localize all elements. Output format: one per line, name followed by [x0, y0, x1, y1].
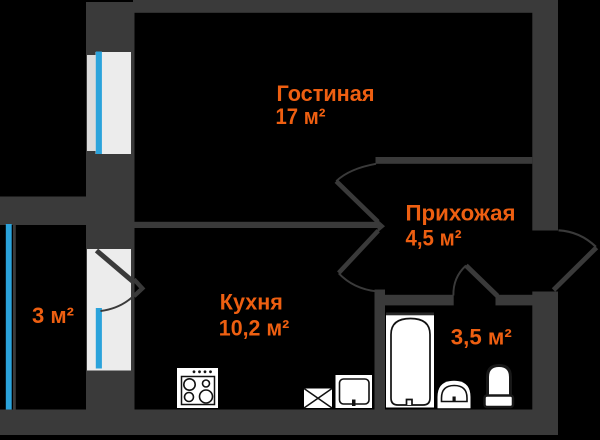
svg-text:3 м²: 3 м²	[32, 303, 74, 328]
svg-text:Гостиная: Гостиная	[277, 81, 375, 106]
svg-text:Кухня: Кухня	[220, 289, 283, 314]
svg-text:3,5 м²: 3,5 м²	[451, 324, 512, 349]
svg-text:10,2 м²: 10,2 м²	[219, 316, 289, 341]
svg-text:Прихожая: Прихожая	[406, 201, 516, 226]
svg-text:17 м²: 17 м²	[276, 104, 326, 129]
svg-text:4,5 м²: 4,5 м²	[406, 226, 462, 251]
